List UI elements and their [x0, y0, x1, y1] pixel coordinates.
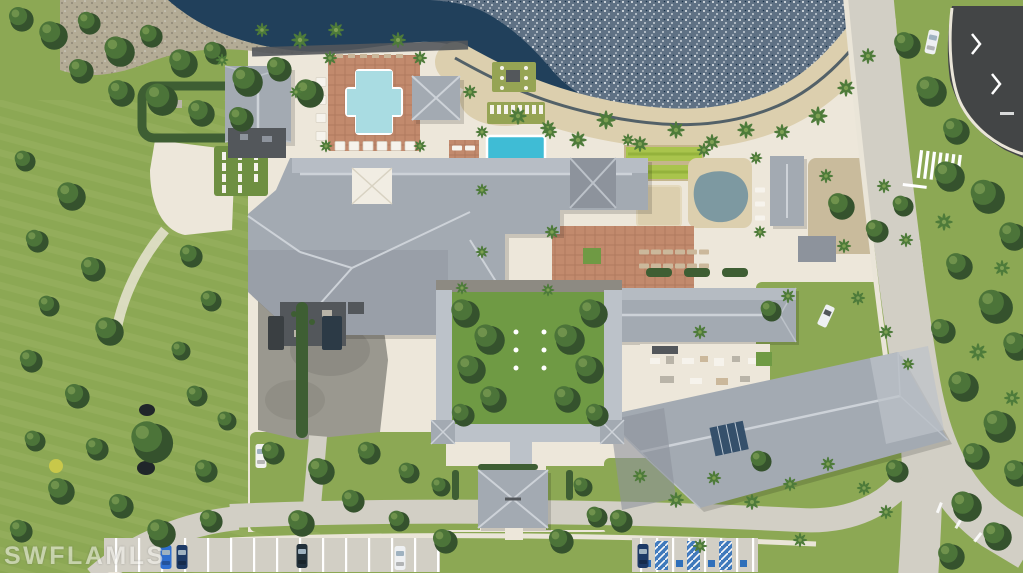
palm-tree: [879, 505, 893, 519]
walkway-corner-cap: [431, 420, 455, 444]
service-truck: [322, 316, 342, 350]
palm-tree: [667, 121, 685, 139]
handicap-parking: [632, 538, 758, 572]
lagoon-pool: [688, 158, 752, 228]
car-navy: [638, 544, 649, 568]
cabana: [349, 142, 359, 151]
handicap-symbol: [708, 560, 715, 567]
palm-tree: [783, 477, 797, 491]
service-truck: [268, 316, 284, 350]
palm-tree: [994, 260, 1010, 276]
palm-tree: [476, 184, 489, 197]
cabana: [391, 142, 401, 151]
palm-tree: [668, 492, 684, 508]
palm-tree: [622, 134, 635, 147]
palm-tree: [255, 23, 269, 37]
palm-tree: [754, 226, 767, 239]
cabana: [377, 142, 387, 151]
lounger: [465, 146, 475, 151]
palm-tree: [781, 289, 795, 303]
cabana: [316, 114, 326, 123]
lounger: [639, 264, 649, 269]
pond: [137, 461, 155, 475]
palm-tree: [632, 136, 648, 152]
palm-tree: [707, 471, 721, 485]
scene-svg: [0, 0, 1023, 573]
palm-tree: [750, 152, 763, 165]
palm-tree: [693, 539, 707, 553]
palm-tree: [1004, 390, 1020, 406]
palm-tree: [899, 233, 913, 247]
palm-tree: [290, 86, 303, 99]
palm-tree: [774, 124, 790, 140]
lounger: [452, 146, 462, 151]
lounger: [663, 250, 673, 255]
lagoon-loungers: [755, 188, 765, 221]
cabana: [405, 142, 415, 151]
palm-tree: [390, 32, 406, 48]
lounger: [699, 264, 709, 269]
palm-tree: [596, 110, 615, 129]
lounger: [663, 264, 673, 269]
palm-tree: [857, 481, 871, 495]
hedge-row: [296, 302, 308, 438]
cabana: [316, 132, 326, 141]
palm-tree: [837, 79, 855, 97]
palm-tree: [216, 54, 229, 67]
hedge: [478, 464, 538, 470]
parking-marking: [1000, 112, 1014, 115]
lounger: [687, 264, 697, 269]
walkway-roof: [436, 424, 622, 442]
deck-lounger-row: [340, 144, 346, 147]
turf-square: [756, 352, 772, 366]
palm-tree: [877, 179, 891, 193]
watermark: SWFLAMLS: [4, 542, 166, 571]
palm-tree: [819, 169, 833, 183]
palm-tree: [414, 140, 427, 153]
walkway-roof: [436, 290, 452, 432]
lounger: [687, 250, 697, 255]
palm-tree: [413, 51, 427, 65]
lounger: [639, 250, 649, 255]
palm-tree: [320, 140, 333, 153]
lounger: [755, 202, 765, 207]
lounger: [755, 216, 765, 221]
car-dark: [297, 544, 308, 568]
lounger: [675, 264, 685, 269]
palm-tree: [456, 282, 469, 295]
palm-tree: [821, 457, 835, 471]
palm-tree: [851, 291, 865, 305]
palm-tree: [935, 213, 953, 231]
palm-tree: [837, 239, 851, 253]
fire-pit: [506, 70, 520, 82]
entry-walk: [505, 528, 523, 540]
palm-tree: [463, 85, 477, 99]
palm-tree: [902, 358, 915, 371]
palm-tree: [542, 284, 555, 297]
asphalt-patch: [265, 380, 325, 420]
palm-tree: [860, 48, 876, 64]
palm-tree: [697, 143, 711, 157]
hedge: [646, 268, 672, 277]
palm-tree: [509, 107, 527, 125]
aerial-photo: SWFLAMLS: [0, 0, 1023, 573]
lounger: [651, 250, 661, 255]
pond: [139, 404, 155, 416]
palm-tree: [543, 125, 557, 139]
palm-tree: [328, 22, 344, 38]
palm-tree: [693, 325, 707, 339]
spa-pavilion-roof: [412, 76, 464, 124]
palm-tree: [879, 325, 893, 339]
palm-tree: [744, 494, 760, 510]
cabana: [363, 142, 373, 151]
car-navy: [177, 545, 188, 569]
plaza-planter: [583, 248, 601, 264]
palm-tree: [323, 51, 337, 65]
brick-plaza: [552, 226, 694, 288]
handicap-symbol: [676, 560, 683, 567]
palm-tree: [969, 343, 987, 361]
palm-tree: [737, 121, 755, 139]
access-aisle: [655, 541, 668, 570]
palm-tree: [291, 31, 309, 49]
hedge: [566, 470, 573, 500]
lounger: [755, 188, 765, 193]
palm-tree: [793, 533, 807, 547]
palm-tree: [633, 469, 647, 483]
lounger: [675, 250, 685, 255]
hedge: [722, 268, 748, 277]
flower-patch: [49, 459, 63, 473]
palm-tree: [808, 106, 827, 125]
handicap-symbol: [740, 560, 747, 567]
car-white: [395, 546, 406, 570]
palm-tree: [545, 225, 559, 239]
outdoor-kitchen: [652, 346, 678, 354]
palm-tree: [476, 126, 489, 139]
hedge: [684, 268, 710, 277]
hedge: [452, 470, 459, 500]
palm-tree: [476, 246, 489, 259]
dumpster: [348, 302, 364, 314]
access-aisle: [719, 541, 732, 570]
palm-tree: [569, 131, 587, 149]
lounger: [651, 264, 661, 269]
lounger: [699, 250, 709, 255]
entry-pavilion-roof: [478, 470, 551, 531]
